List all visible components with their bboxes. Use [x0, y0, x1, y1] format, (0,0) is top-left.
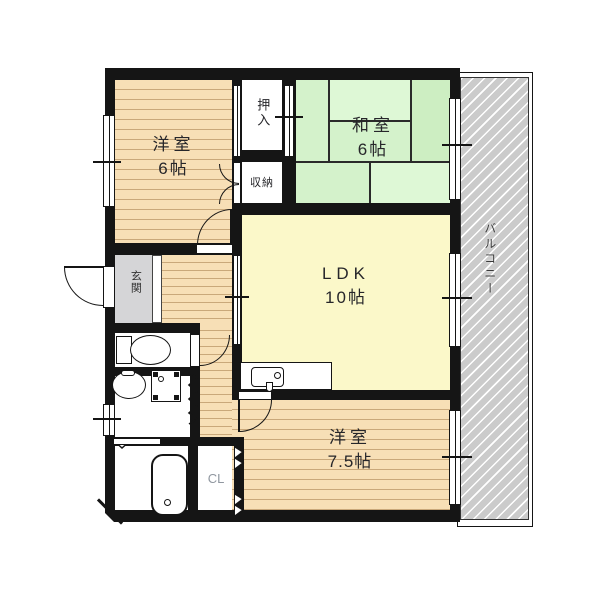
wall-outer-top [105, 68, 460, 80]
wall-genkan-toilet [105, 323, 200, 333]
window-ldk-balcony [449, 253, 461, 347]
wall-ldk-north [232, 203, 450, 215]
fusuma-oshiire-washitsu [284, 85, 294, 157]
cl-folding-door-icon-lower [234, 494, 245, 516]
label-oshiire: 押入 [253, 98, 271, 128]
label-western-75: 洋室 7.5帖 [250, 426, 450, 474]
wall-bath-cl [188, 446, 198, 510]
toilet-door [190, 334, 200, 367]
tap-icon [266, 382, 273, 392]
cl-folding-door-icon-upper [234, 447, 245, 469]
floor-plan: バルコニー [0, 0, 600, 600]
bathtub-icon [151, 454, 188, 516]
entrance-door-arc [64, 267, 103, 306]
label-washitsu: 和室 6帖 [296, 114, 450, 162]
western6-door-opening [196, 244, 233, 254]
fusuma-oshiire-western6 [233, 85, 241, 157]
washroom-folding-door-icon [187, 371, 199, 425]
label-genkan: 玄関 [127, 270, 142, 294]
label-western-6: 洋室 6帖 [115, 133, 232, 181]
genkan-step [152, 255, 162, 323]
washing-machine-icon [151, 370, 181, 402]
window-washroom-west [103, 404, 115, 436]
window-tick [93, 418, 121, 420]
label-cl: CL [198, 470, 234, 488]
window-washitsu-balcony [449, 98, 461, 200]
entrance-door [103, 266, 115, 308]
washbasin-ledge-icon [121, 370, 135, 376]
bathtub-drain-icon [164, 499, 171, 506]
toilet-bowl-icon [130, 335, 171, 365]
tatami-mat [370, 163, 450, 203]
bathroom-door-opening [113, 438, 161, 445]
hallway-upper [162, 255, 232, 323]
slider-hall-ldk [233, 255, 241, 345]
faucet-icon [274, 372, 281, 379]
label-shuno: 収納 [242, 176, 282, 191]
label-ldk: LDK 10帖 [242, 262, 450, 310]
label-balcony: バルコニー [481, 222, 498, 297]
wall-oshiire-shuno [242, 150, 282, 162]
western75-door-opening [238, 391, 272, 400]
tatami-line [369, 163, 371, 203]
